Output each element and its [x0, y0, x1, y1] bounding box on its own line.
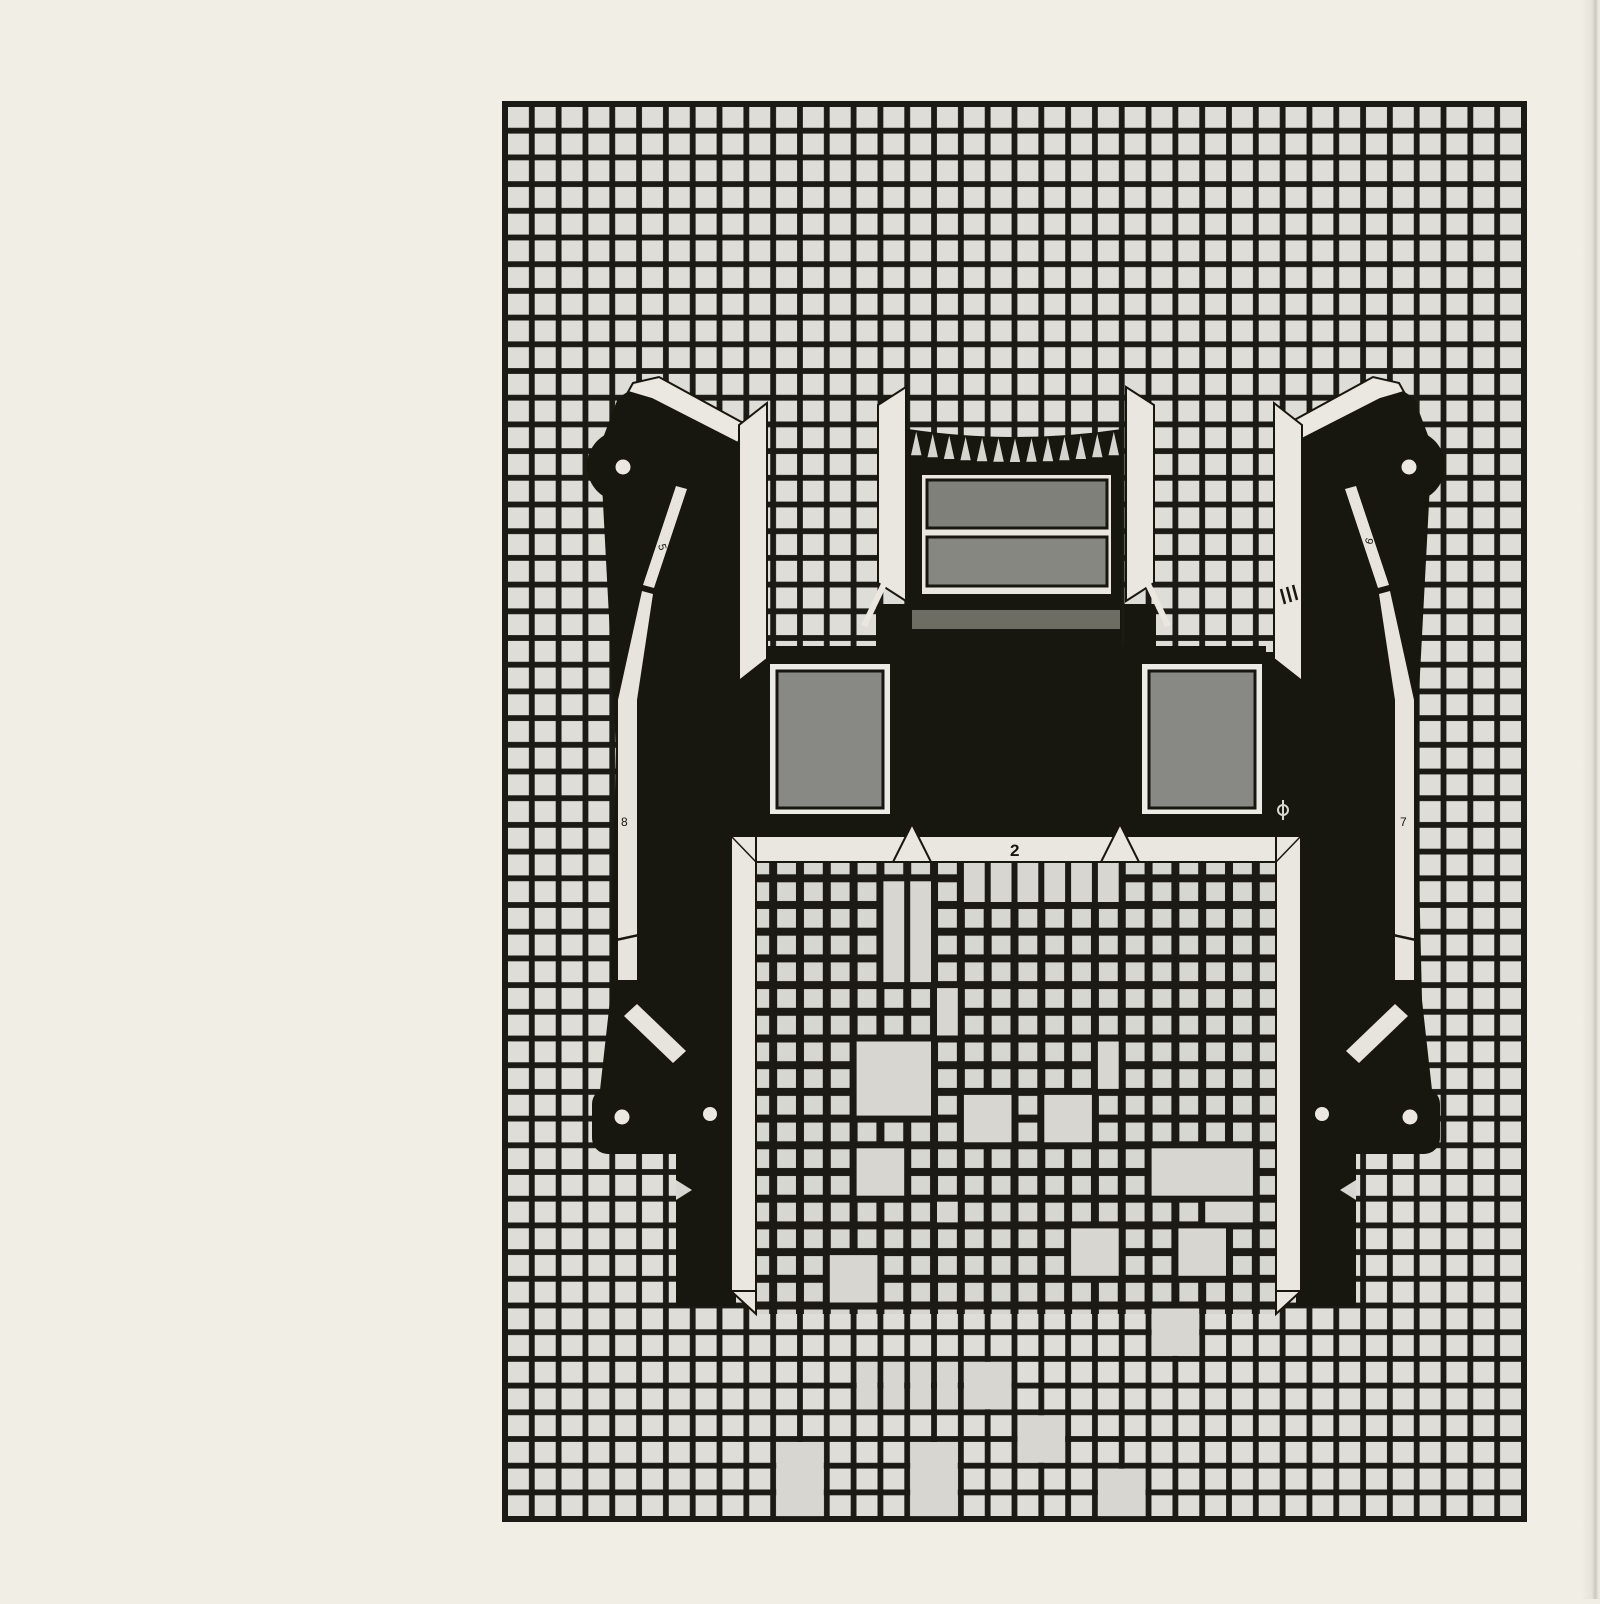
svg-text:7: 7: [1400, 815, 1407, 829]
svg-text:8: 8: [621, 815, 628, 829]
svg-text:2: 2: [1010, 841, 1019, 860]
